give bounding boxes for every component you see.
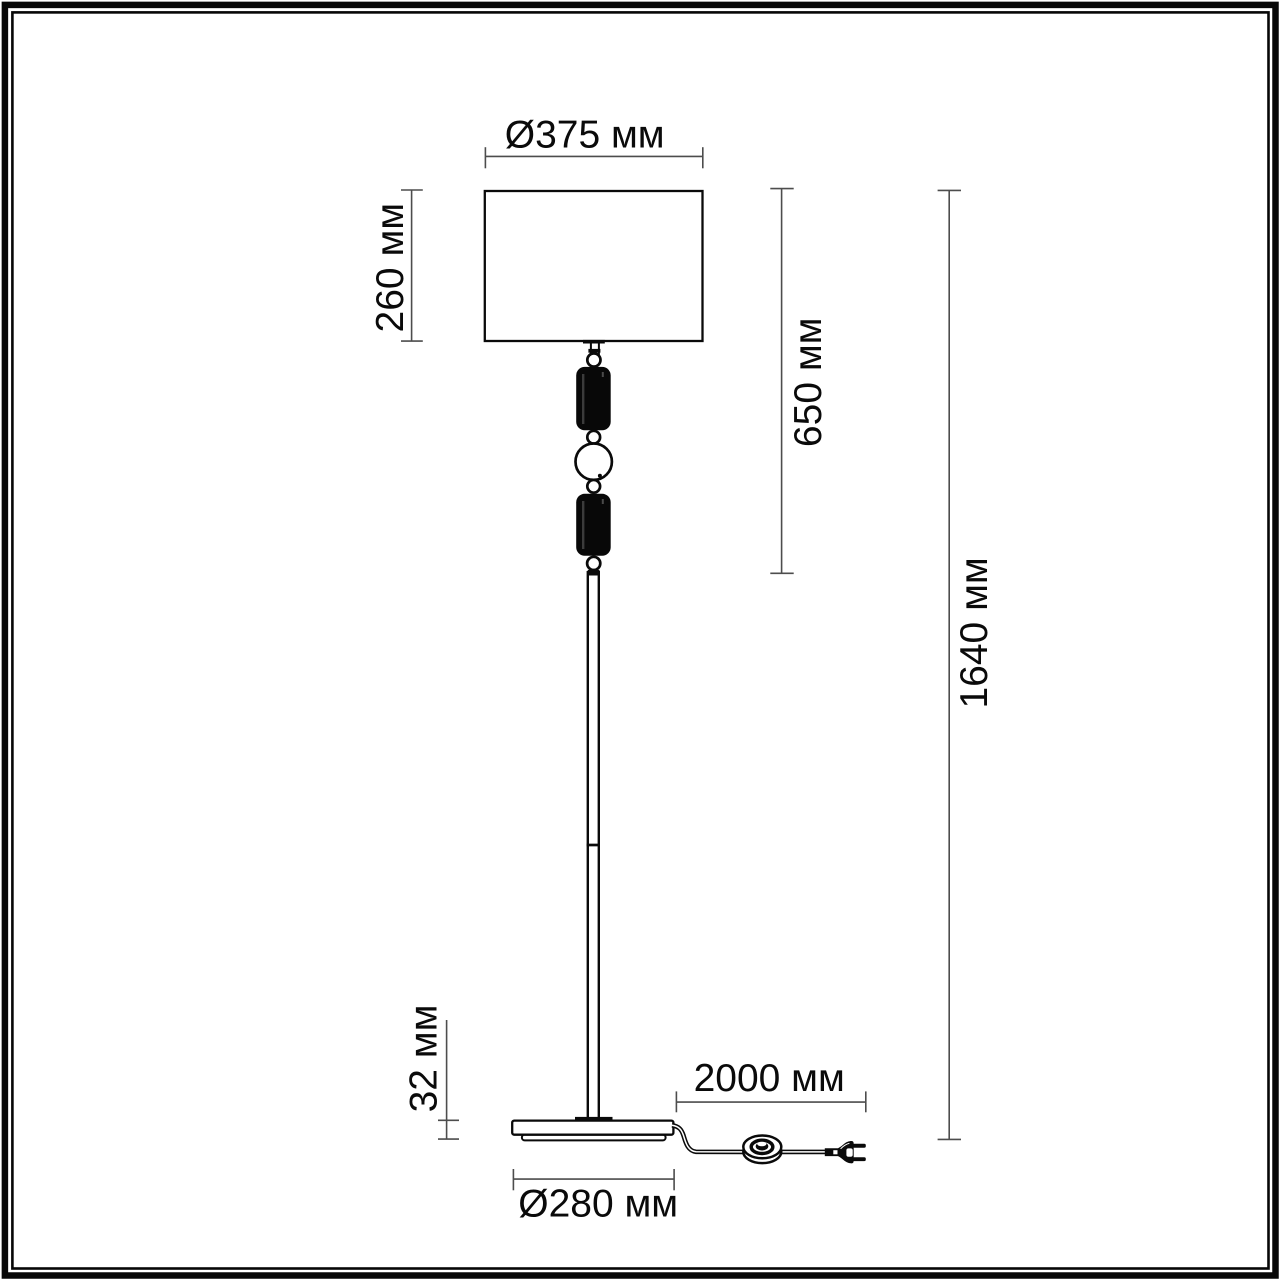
svg-text:Ø375 мм: Ø375 мм xyxy=(505,114,665,157)
svg-text:650 мм: 650 мм xyxy=(787,318,830,448)
svg-text:32 мм: 32 мм xyxy=(402,1005,445,1113)
svg-text:2000 мм: 2000 мм xyxy=(694,1057,845,1100)
svg-text:Ø280 мм: Ø280 мм xyxy=(518,1183,678,1226)
svg-text:1640 мм: 1640 мм xyxy=(953,557,996,708)
svg-text:260 мм: 260 мм xyxy=(369,203,412,333)
